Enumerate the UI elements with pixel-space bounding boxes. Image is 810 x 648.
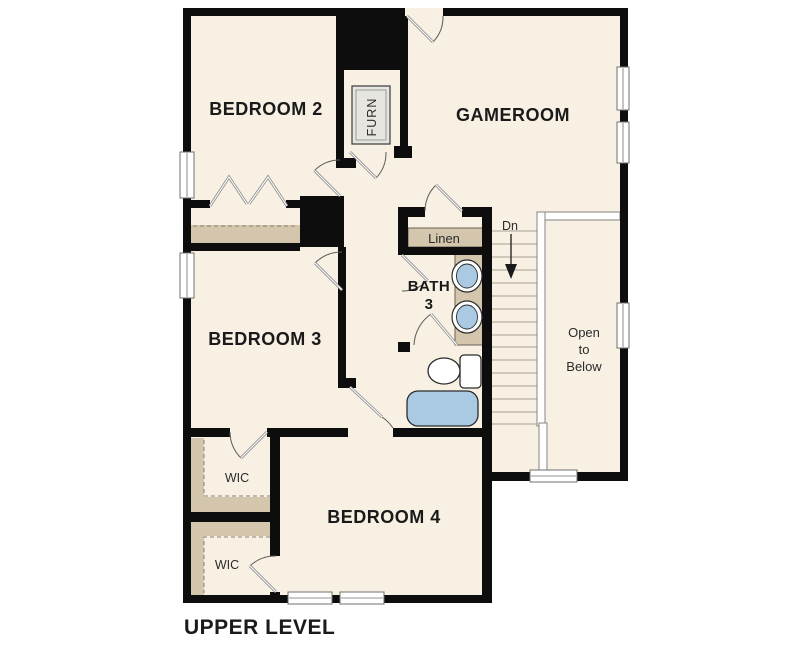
wall-segment bbox=[384, 595, 490, 603]
stair-railing-side bbox=[537, 212, 545, 426]
wall-segment bbox=[336, 16, 344, 160]
linen-label: Linen bbox=[428, 231, 460, 246]
level-title: UPPER LEVEL bbox=[184, 616, 335, 639]
open-to-below-line1: Open bbox=[568, 325, 600, 340]
stairs-down-label: Dn bbox=[502, 219, 518, 233]
wall-segment bbox=[332, 595, 340, 603]
sink-basin bbox=[457, 264, 478, 288]
wall-segment bbox=[183, 200, 210, 208]
wall-segment bbox=[183, 298, 191, 603]
wall-segment bbox=[400, 16, 408, 148]
wall-segment bbox=[267, 428, 348, 437]
stair-railing-lower bbox=[539, 423, 547, 472]
wall-segment bbox=[300, 196, 344, 247]
wall-segment bbox=[338, 378, 356, 388]
wall-segment bbox=[183, 8, 191, 152]
bath3-label-line2: 3 bbox=[425, 296, 434, 313]
wic-lower-label: WIC bbox=[215, 558, 239, 572]
bath3-label-line1: BATH bbox=[408, 278, 451, 295]
bathtub bbox=[407, 391, 478, 426]
wic-lower-shelf-left bbox=[191, 522, 204, 595]
wall-segment bbox=[183, 243, 300, 251]
bedroom4-label: BEDROOM 4 bbox=[327, 507, 441, 527]
wall-segment bbox=[462, 207, 488, 217]
wall-segment bbox=[398, 247, 483, 255]
wall-segment bbox=[443, 8, 628, 16]
bedroom3-label: BEDROOM 3 bbox=[208, 329, 322, 349]
wall-segment bbox=[183, 512, 280, 522]
bedroom2-label: BEDROOM 2 bbox=[209, 99, 323, 119]
wall-segment bbox=[183, 8, 405, 16]
furnace-unit: FURN bbox=[352, 86, 390, 144]
wall-segment bbox=[620, 163, 628, 303]
wall-segment bbox=[338, 247, 346, 378]
wall-segment bbox=[270, 592, 280, 603]
wall-segment bbox=[336, 158, 356, 168]
toilet-bowl bbox=[428, 358, 460, 384]
wic-upper-label: WIC bbox=[225, 471, 249, 485]
wall-segment bbox=[577, 472, 628, 481]
stair-railing-top bbox=[537, 212, 620, 220]
wall-segment bbox=[620, 348, 628, 481]
wall-segment bbox=[398, 342, 410, 352]
wall-segment bbox=[398, 207, 408, 252]
gameroom-label: GAMEROOM bbox=[456, 105, 570, 125]
bedroom2-closet-shelf bbox=[191, 225, 300, 243]
floor-plan-page: FURN BEDROOM 2 GAMEROOM BEDROOM 3 BEDROO… bbox=[0, 0, 810, 648]
wall-segment bbox=[343, 16, 405, 70]
wall-segment bbox=[286, 200, 300, 208]
furnace-label: FURN bbox=[365, 98, 379, 137]
upper-level-floor-plan: FURN BEDROOM 2 GAMEROOM BEDROOM 3 BEDROO… bbox=[0, 0, 810, 648]
sink-basin bbox=[457, 305, 478, 329]
toilet-tank bbox=[460, 355, 481, 388]
open-to-below-line2: to bbox=[579, 342, 590, 357]
open-to-below-line3: Below bbox=[566, 359, 602, 374]
wall-segment bbox=[620, 110, 628, 122]
wall-segment bbox=[393, 428, 492, 437]
wic-upper-shelf-bottom bbox=[191, 497, 270, 512]
wall-segment bbox=[394, 146, 412, 158]
wall-segment bbox=[482, 207, 492, 603]
wall-segment bbox=[620, 8, 628, 68]
wall-segment bbox=[183, 428, 230, 437]
wall-segment bbox=[270, 437, 280, 556]
